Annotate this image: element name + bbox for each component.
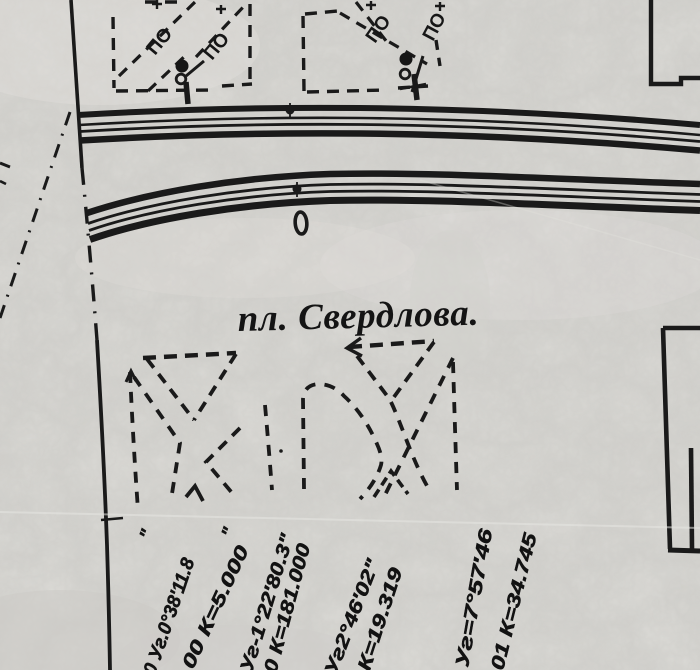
svg-text:пл. Свердлова.: пл. Свердлова. — [237, 293, 480, 340]
